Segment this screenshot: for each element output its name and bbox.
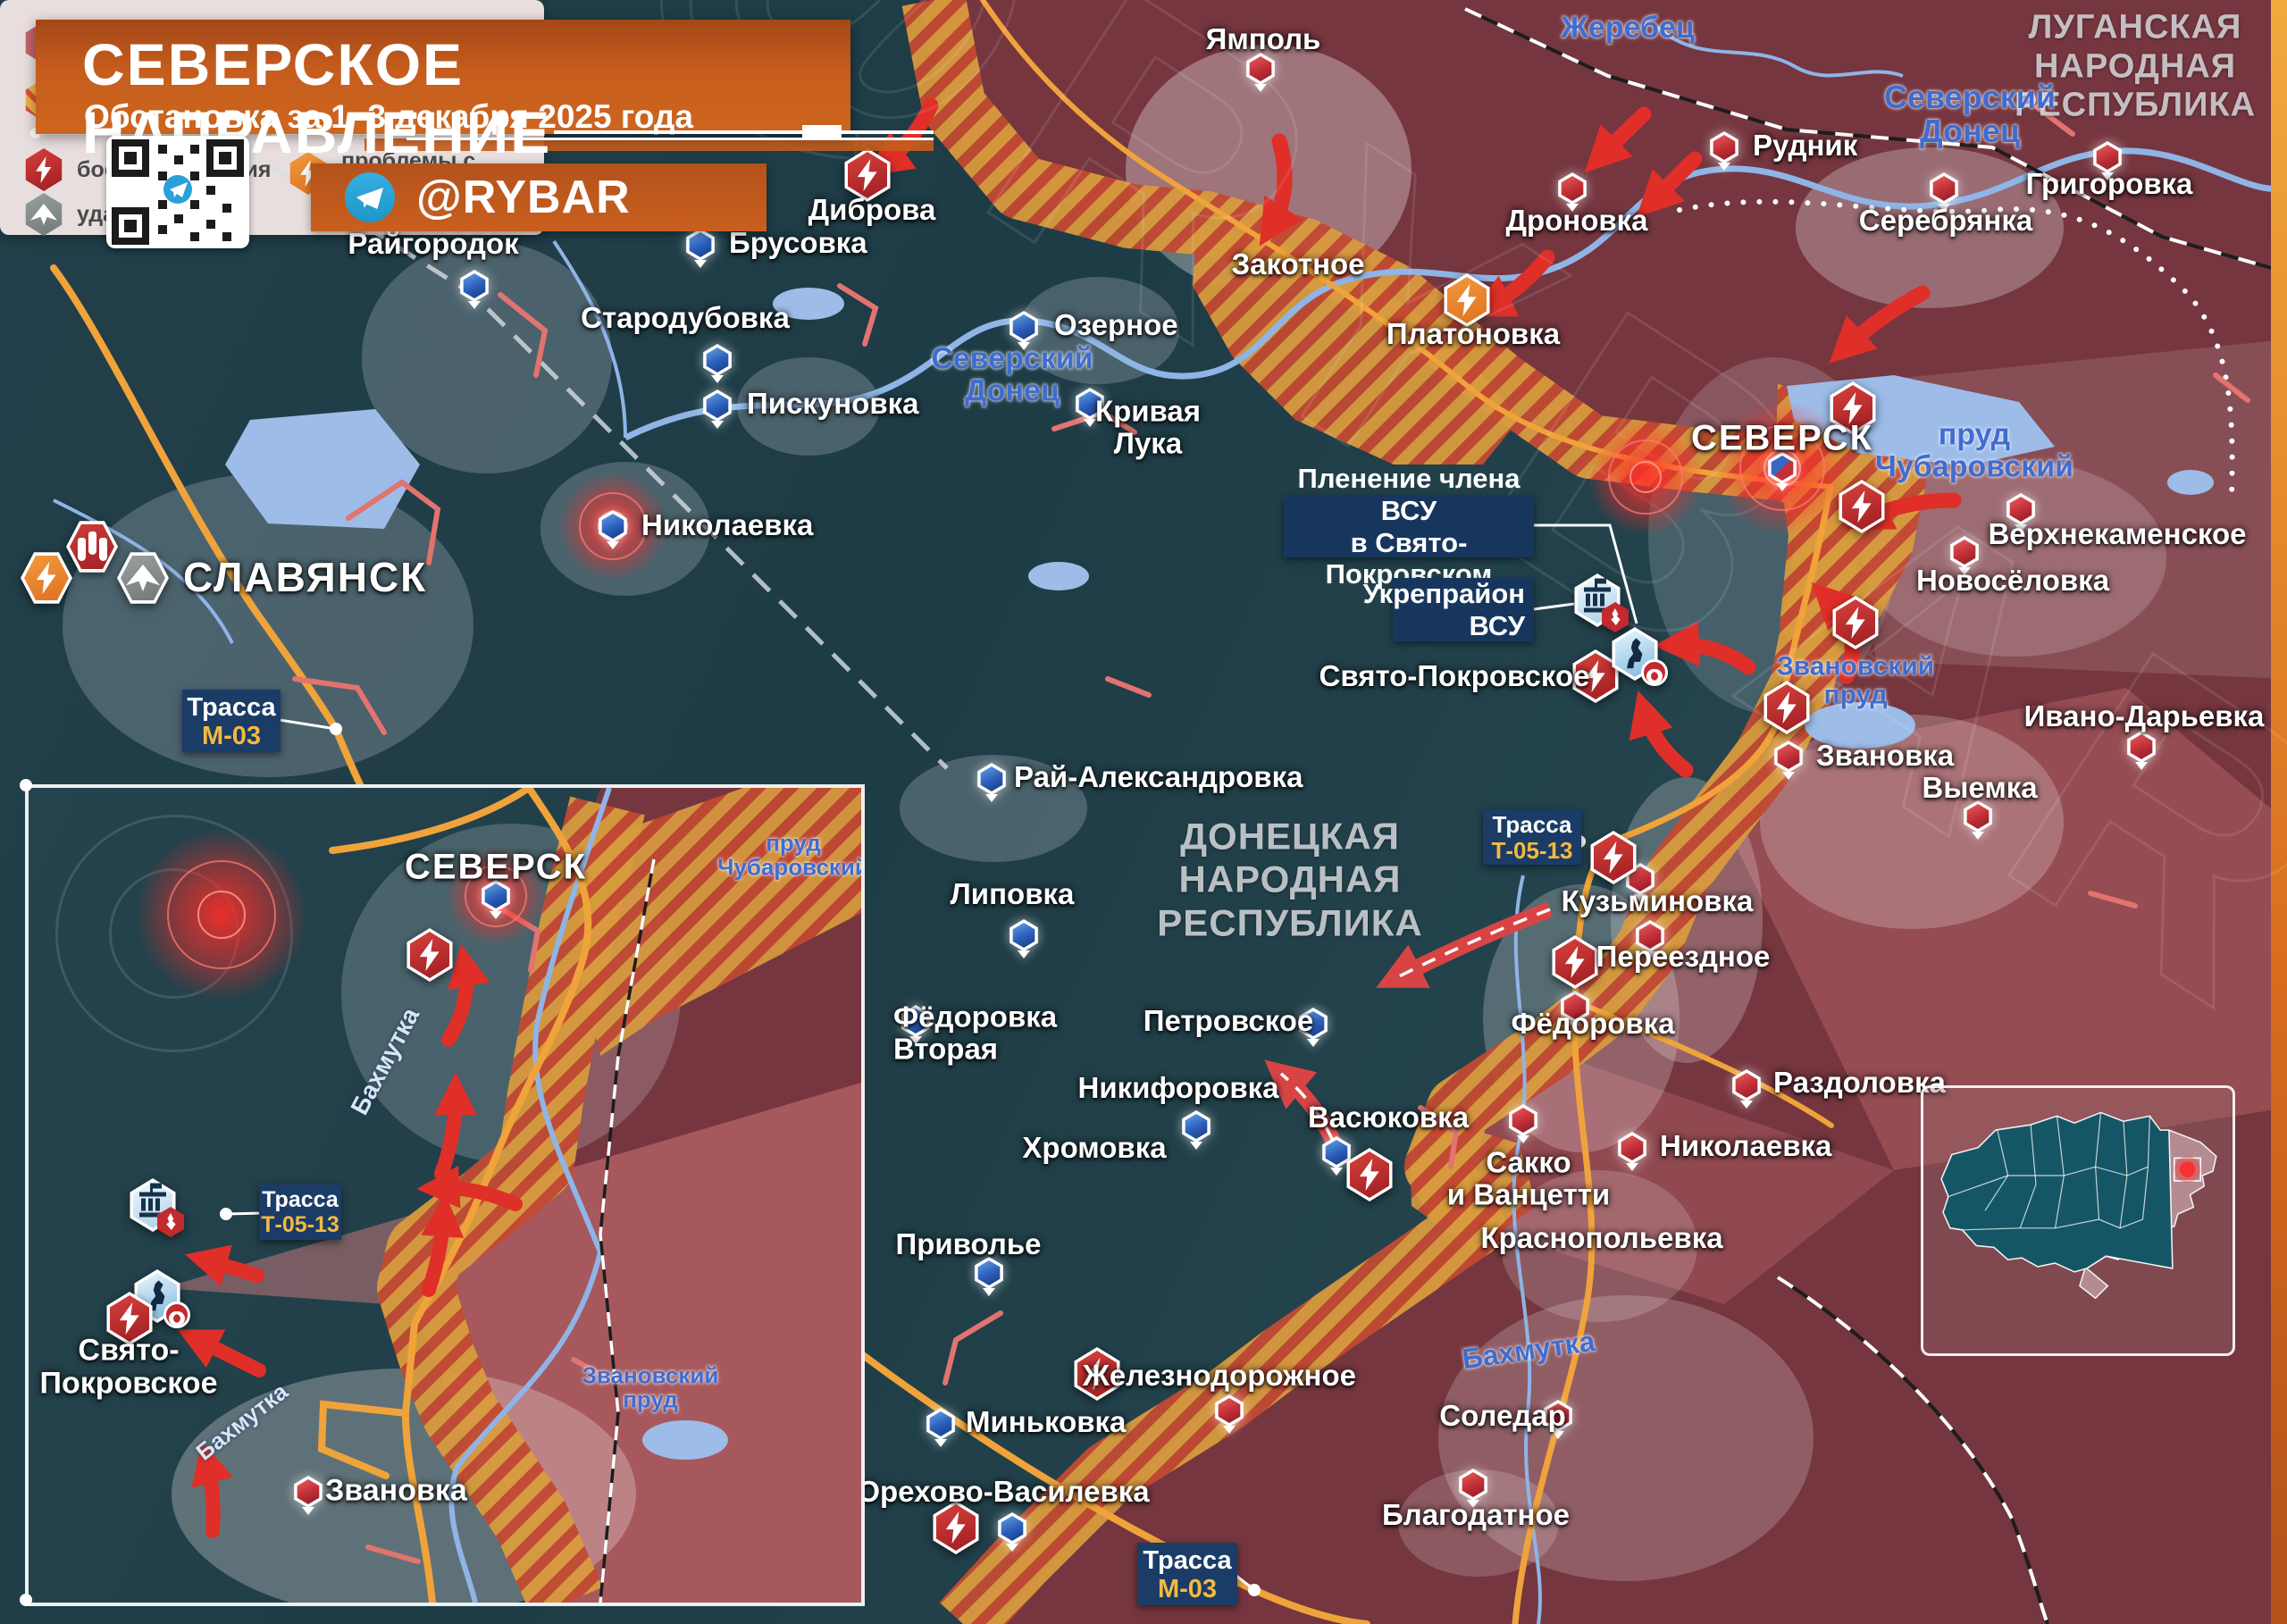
channel-banner: @RYBAR	[311, 163, 767, 231]
inset-road-box-t0513: Трасса Т-05-13	[259, 1185, 341, 1240]
pow-capture-icon	[1609, 627, 1661, 681]
rf-control-marker	[1556, 172, 1588, 205]
focus-glow	[2174, 1156, 2200, 1182]
rf-control-marker	[1962, 800, 1994, 833]
inset-corner-dot	[20, 779, 32, 791]
road-number: Т-05-13	[1483, 838, 1581, 864]
ua-control-marker	[973, 1257, 1005, 1289]
settlement-label: Звановка	[1816, 739, 1954, 773]
callout-capture: Пленение члена ВСУ в Свято-Покровском	[1284, 496, 1534, 557]
title-decor-line	[554, 130, 934, 134]
settlement-label: Хромовка	[1022, 1131, 1166, 1165]
fortification-strike-icon	[1571, 573, 1623, 627]
inset-leader-dot	[220, 1208, 232, 1220]
battle-icon	[23, 148, 64, 191]
pond-label-chubarovsky: пруд Чубаровский	[1875, 419, 2073, 482]
inset-pond	[642, 1420, 728, 1460]
inset-city-label-seversk: СЕВЕРСК	[405, 848, 587, 888]
battle-icon	[930, 1501, 982, 1554]
settlement-label: Серебрянка	[1859, 204, 2032, 238]
settlement-label: Свято-Покровское	[1319, 659, 1590, 693]
settlement-label: Благодатное	[1382, 1498, 1570, 1532]
settlement-label: Пискуновка	[747, 387, 918, 421]
title-decor-square	[802, 125, 842, 139]
settlement-label: Приволье	[896, 1227, 1042, 1261]
rf-control-marker	[1616, 1132, 1648, 1164]
inset-corner-dot	[20, 1594, 32, 1606]
river-label-donets: Северский Донец	[931, 343, 1093, 406]
ua-control-marker	[1180, 1110, 1212, 1143]
road-box-m03: Трасса М-03	[182, 690, 281, 752]
settlement-label: Николаевка	[1660, 1129, 1831, 1163]
settlement-label: Диброва	[808, 193, 936, 227]
rf-control-marker	[1244, 53, 1277, 85]
rf-control-marker	[2125, 731, 2157, 763]
rf-control-marker	[1928, 172, 1960, 205]
ukraine-free-area	[1941, 1112, 2173, 1271]
settlement-label: Соледар	[1439, 1399, 1566, 1433]
settlement-label: Орехово-Василевка	[857, 1475, 1149, 1509]
road-box-m03-bottom: Трасса М-03	[1137, 1543, 1237, 1605]
road-word: Трасса	[1137, 1546, 1237, 1575]
ua-control-marker	[996, 1512, 1028, 1544]
settlement-label: Григоровка	[2026, 167, 2193, 201]
settlement-label: Закотное	[1231, 247, 1364, 281]
battle-icon	[1836, 480, 1888, 533]
settlement-label: Петровское	[1143, 1004, 1314, 1038]
road-box-t0513: Трасса Т-05-13	[1483, 809, 1581, 865]
battle-icon	[1761, 681, 1813, 734]
settlement-label: Кузьминовка	[1562, 884, 1754, 918]
river-label-zherebets: Жеребец	[1561, 13, 1695, 45]
road-number: Т-05-13	[259, 1212, 341, 1237]
settlement-label: Ямполь	[1206, 22, 1321, 56]
inset-fortification-strike-icon	[127, 1178, 179, 1232]
settlement-label: Стародубовка	[581, 301, 790, 335]
settlement-label: Железнодорожное	[1083, 1359, 1356, 1393]
settlement-label: Рай-Александровка	[1014, 760, 1303, 794]
settlement-label: Рудник	[1753, 129, 1857, 163]
settlement-label: Раздоловка	[1773, 1066, 1946, 1100]
settlement-label: Платоновка	[1386, 317, 1560, 351]
ua-control-marker	[925, 1408, 957, 1440]
rf-control-marker	[1708, 131, 1740, 163]
rf-control-marker	[1457, 1469, 1489, 1501]
rf-control-marker	[1730, 1069, 1763, 1101]
settlement-label: Выемка	[1922, 771, 2037, 805]
ua-control-marker	[976, 763, 1008, 795]
settlement-label: Новосёловка	[1916, 564, 2109, 598]
inset-pond-label-zvanovsky: Звановский пруд	[582, 1364, 719, 1413]
inset-pond-label-chubarovsky: пруд Чубаровский	[717, 832, 865, 881]
inset-settlement-label: Звановка	[325, 1474, 467, 1509]
settlement-label: Фёдоровка Вторая	[893, 1000, 1057, 1064]
settlement-label: Сакко и Ванцетти	[1447, 1146, 1610, 1210]
battle-icon	[1549, 935, 1601, 989]
qr-code	[106, 136, 249, 248]
settlement-label: Краснопольевка	[1480, 1221, 1722, 1255]
ua-control-marker	[597, 510, 629, 542]
drone-strike-icon	[23, 193, 64, 235]
road-word: Трасса	[259, 1187, 341, 1212]
ukraine-map-shape	[1923, 1088, 2233, 1353]
road-word: Трасса	[182, 693, 281, 722]
battle-icon	[1587, 831, 1639, 884]
settlement-label: Никифоровка	[1078, 1071, 1279, 1105]
channel-handle: @RYBAR	[416, 171, 631, 224]
inset-battle-icon	[404, 928, 456, 982]
city-label-slavyansk: СЛАВЯНСК	[183, 553, 427, 601]
airstrike-icon	[66, 520, 118, 573]
ua-control-marker	[701, 344, 733, 376]
settlement-label: Озерное	[1054, 308, 1178, 342]
settlement-label: Николаевка	[641, 508, 813, 542]
telegram-icon	[345, 172, 395, 222]
inset-settlement-label: Свято- Покровское	[40, 1334, 218, 1399]
inset-map-seversk: СЕВЕРСК Свято- Покровское Звановка Трасс…	[25, 784, 865, 1606]
settlement-label: Липовка	[951, 877, 1075, 911]
inset-strike-target	[137, 830, 306, 1000]
power-outage-icon	[21, 551, 72, 605]
inset-rf-marker	[292, 1476, 324, 1508]
settlement-label: Ивано-Дарьевка	[2024, 699, 2265, 733]
strike-target	[1587, 419, 1704, 535]
region-label-dnr: ДОНЕЦКАЯ НАРОДНАЯ РЕСПУБЛИКА	[1157, 816, 1422, 945]
rf-control-marker	[1213, 1394, 1245, 1427]
ua-control-marker	[1008, 919, 1040, 951]
settlement-label: Дроновка	[1505, 204, 1647, 238]
battle-icon	[1344, 1148, 1395, 1201]
ua-control-marker	[684, 229, 716, 261]
ua-control-marker	[458, 270, 490, 302]
settlement-label: Кривая Лука	[1081, 395, 1215, 458]
rf-control-marker	[1772, 741, 1805, 773]
road-word: Трасса	[1483, 812, 1581, 838]
settlement-label: Райгородок	[348, 227, 518, 261]
settlement-label: Верхнекаменское	[1988, 517, 2246, 551]
title-block: СЕВЕРСКОЕ НАПРАВЛЕНИЕ Обстановка за 1–3 …	[36, 20, 850, 134]
battle-icon	[1830, 596, 1881, 649]
ukraine-overview-map	[1921, 1085, 2235, 1356]
settlement-label: Миньковка	[966, 1405, 1126, 1439]
settlement-label: Переездное	[1596, 940, 1771, 974]
settlement-label: Фёдоровка	[1511, 1007, 1674, 1041]
settlement-label: Васюковка	[1308, 1101, 1469, 1134]
qr-pattern	[106, 136, 249, 248]
city-label-seversk: СЕВЕРСК	[1691, 419, 1873, 459]
map-canvas: @RYBAR СЕВЕРСКОЕ НАПРАВЛЕНИЕ Обстановка …	[0, 0, 2287, 1624]
title-decor-line	[406, 138, 934, 140]
river-label-donets: Северский Донец	[1884, 80, 2056, 148]
road-number: М-03	[182, 722, 281, 750]
drone-strike-icon	[117, 551, 169, 605]
callout-ukrep: Укрепрайон ВСУ	[1393, 578, 1534, 641]
road-number: М-03	[1137, 1575, 1237, 1603]
ua-control-marker	[1008, 311, 1040, 343]
ua-control-marker	[701, 389, 733, 422]
rf-control-marker	[1507, 1104, 1539, 1136]
